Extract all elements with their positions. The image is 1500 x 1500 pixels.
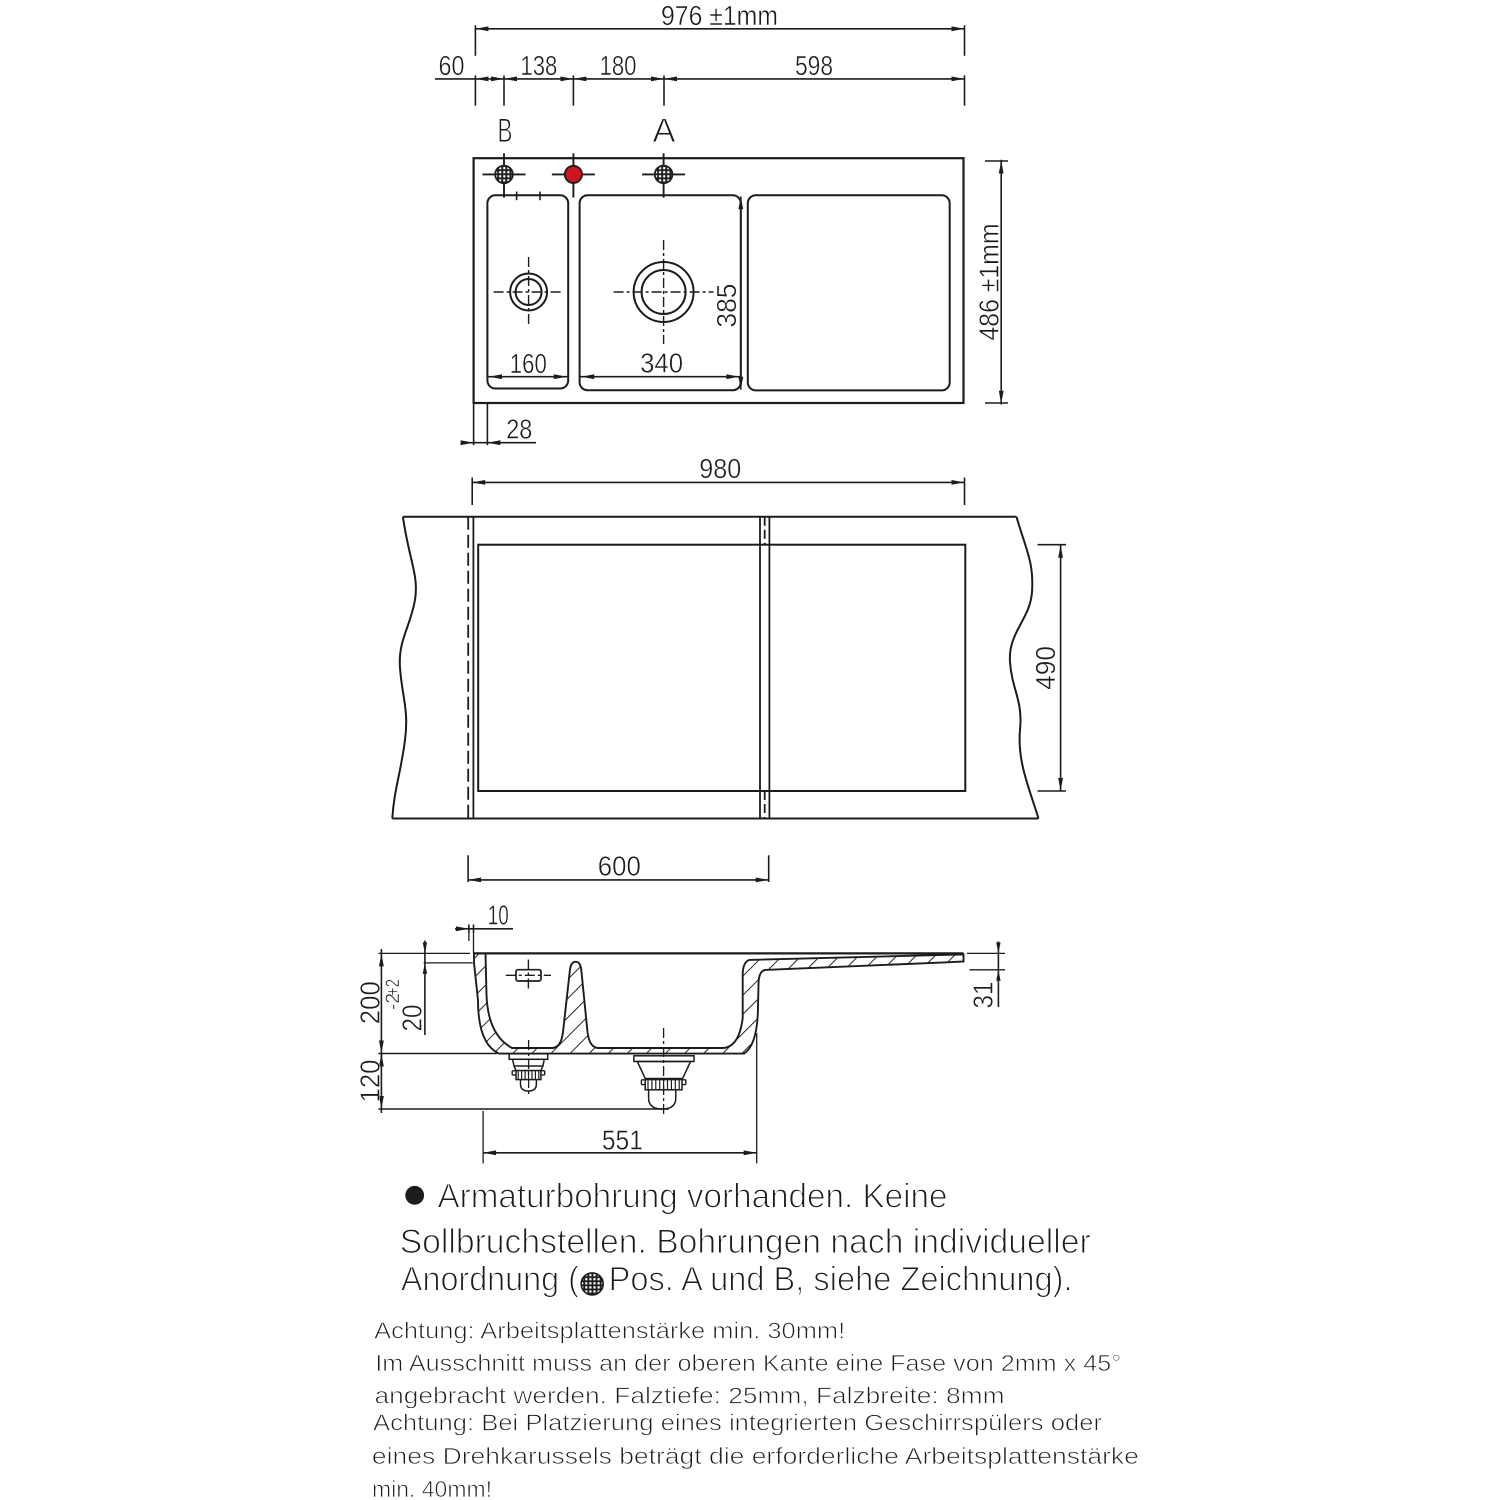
svg-text:-2: -2 xyxy=(383,993,404,1010)
svg-text:A: A xyxy=(653,112,676,150)
svg-text:60: 60 xyxy=(439,50,465,81)
svg-text:Achtung: Arbeitsplattenstärke: Achtung: Arbeitsplattenstärke min. 30mm! xyxy=(374,1317,845,1343)
svg-text:180: 180 xyxy=(600,50,637,81)
svg-text:Sollbruchstellen. Bohrungen na: Sollbruchstellen. Bohrungen nach individ… xyxy=(400,1223,1091,1261)
svg-text:120: 120 xyxy=(355,1060,386,1103)
svg-text:340: 340 xyxy=(640,348,683,379)
svg-text:486 ±1mm: 486 ±1mm xyxy=(974,224,1005,341)
svg-text:551: 551 xyxy=(602,1125,643,1156)
svg-text:28: 28 xyxy=(506,414,532,445)
svg-text:598: 598 xyxy=(795,50,833,81)
svg-text:Achtung: Bei Platzierung eines: Achtung: Bei Platzierung eines integrier… xyxy=(373,1410,1102,1436)
svg-text:Pos. A und B, siehe Zeichnung): Pos. A und B, siehe Zeichnung). xyxy=(609,1261,1073,1299)
svg-text:angebracht werden. Falztiefe:: angebracht werden. Falztiefe: 25mm, Falz… xyxy=(375,1383,1005,1409)
svg-text:490: 490 xyxy=(1030,646,1061,690)
svg-text:31: 31 xyxy=(968,982,999,1009)
svg-text:200: 200 xyxy=(355,981,386,1024)
svg-text:385: 385 xyxy=(711,284,742,328)
svg-text:eines Drehkarussels beträgt di: eines Drehkarussels beträgt die erforder… xyxy=(372,1443,1139,1469)
svg-text:Anordnung (: Anordnung ( xyxy=(401,1261,579,1299)
svg-text:976 ±1mm: 976 ±1mm xyxy=(661,0,778,31)
svg-text:160: 160 xyxy=(510,348,547,379)
svg-text:Im Ausschnitt muss an der ober: Im Ausschnitt muss an der oberen Kante e… xyxy=(375,1350,1121,1376)
svg-text:10: 10 xyxy=(488,900,509,931)
svg-text:B: B xyxy=(498,112,513,150)
svg-text:980: 980 xyxy=(699,453,741,484)
svg-text:138: 138 xyxy=(520,50,557,81)
svg-text:min. 40mm!: min. 40mm! xyxy=(372,1476,492,1500)
svg-text:Armaturbohrung vorhanden. Kein: Armaturbohrung vorhanden. Keine xyxy=(438,1177,948,1215)
svg-text:600: 600 xyxy=(598,850,641,881)
